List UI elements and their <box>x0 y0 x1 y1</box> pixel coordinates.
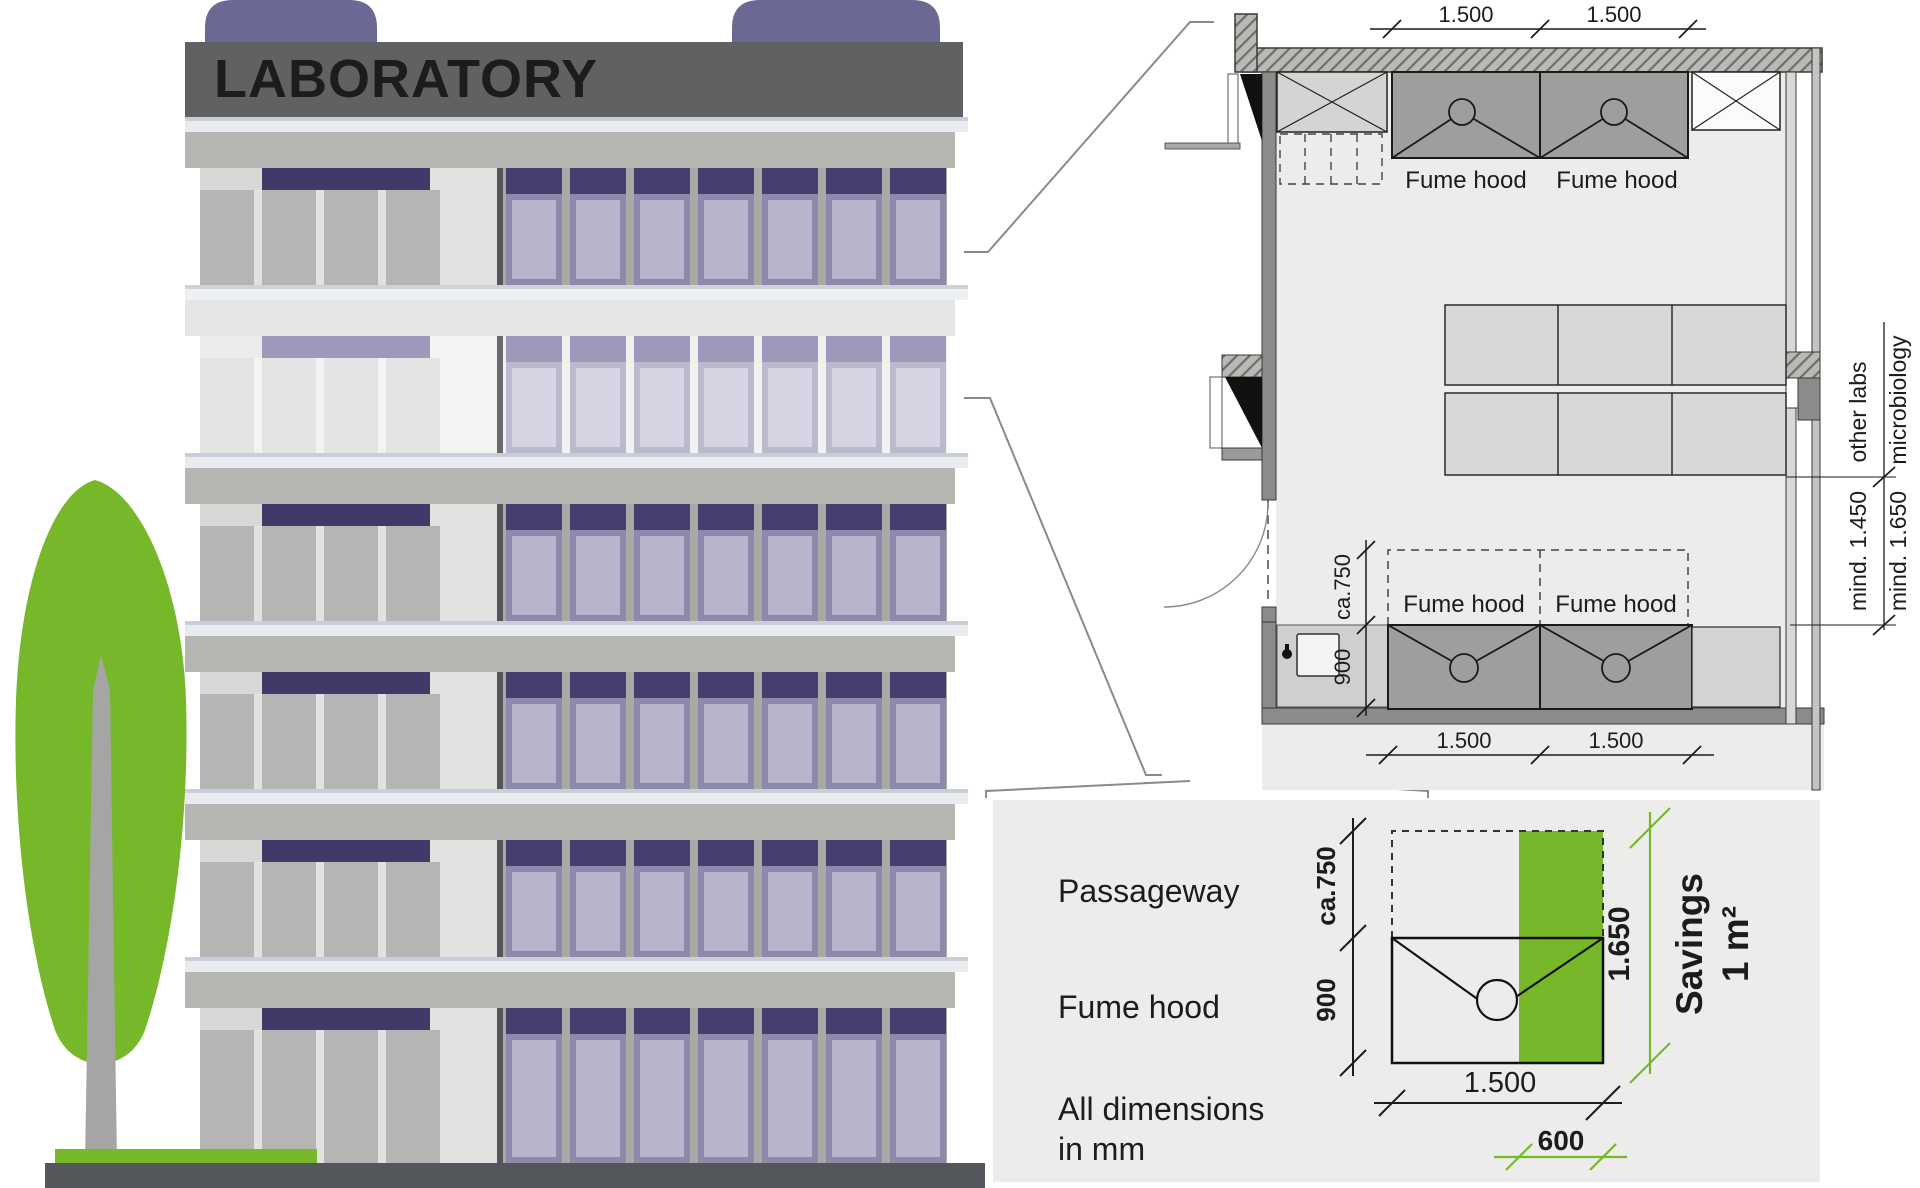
wall-right-pier <box>1798 378 1820 420</box>
window-pane <box>576 704 620 783</box>
window-header <box>570 672 626 698</box>
facade-left-window <box>262 526 316 621</box>
window-pane <box>896 872 940 951</box>
window-header <box>506 504 562 530</box>
facade-accent-band <box>262 168 430 190</box>
window-header <box>570 504 626 530</box>
roof-structure-right <box>732 0 940 44</box>
crossed-cabinet-right <box>1692 72 1780 130</box>
floor-spandrel <box>185 804 955 840</box>
facade-left-window <box>262 1030 316 1163</box>
window-pane <box>832 200 876 279</box>
facade-left-window <box>386 1030 440 1163</box>
facade-divider <box>497 1008 503 1163</box>
window-pane <box>576 872 620 951</box>
floor-slab-edge <box>185 621 968 625</box>
wall-left <box>1262 72 1276 724</box>
window-pane <box>640 704 684 783</box>
window-header <box>698 504 754 530</box>
bracket-left <box>986 781 1190 798</box>
wall-corner-stub <box>1235 14 1257 72</box>
window-header <box>634 1008 690 1034</box>
ground-strip <box>45 1163 985 1188</box>
window-pane <box>704 872 748 951</box>
facade-accent-band <box>262 840 430 862</box>
facade-left-window <box>200 190 254 285</box>
window-header <box>506 336 562 362</box>
window-pane <box>576 536 620 615</box>
hood-top-label-2: Fume hood <box>1556 167 1677 194</box>
wall-right-niche <box>1786 378 1798 408</box>
floor-spandrel <box>185 468 955 504</box>
detail-dim-width: 1.500 <box>1464 1067 1537 1099</box>
dim-top-2: 1.500 <box>1586 2 1641 27</box>
window-pane <box>576 200 620 279</box>
facade-left-window <box>262 358 316 453</box>
facade-left-window <box>386 526 440 621</box>
window-header <box>698 336 754 362</box>
label-other-labs: other labs <box>1845 361 1871 462</box>
facade-divider <box>497 672 503 789</box>
window-header <box>634 504 690 530</box>
callout-line-bottom <box>964 398 1162 775</box>
detail-dim-depth: 900 <box>1311 978 1341 1021</box>
note-in-mm: in mm <box>1058 1131 1145 1167</box>
hood-bottom-label-2: Fume hood <box>1555 591 1676 618</box>
window-symbol-lower <box>1210 355 1262 460</box>
window-header <box>826 672 882 698</box>
facade-accent-band <box>262 672 430 694</box>
facade-left-block <box>200 840 262 862</box>
window-pane <box>576 1040 620 1157</box>
dim-depth-plan: 900 <box>1330 649 1355 686</box>
window-pane <box>640 1040 684 1157</box>
window-pane <box>896 1040 940 1157</box>
note-all-dimensions: All dimensions <box>1058 1091 1264 1127</box>
floor-slab <box>185 793 968 804</box>
facade-divider <box>497 336 503 453</box>
window-header <box>890 672 946 698</box>
window-pane <box>512 704 556 783</box>
window-header <box>570 168 626 194</box>
wall-top <box>1242 48 1822 72</box>
facade-left-window <box>324 190 378 285</box>
fume-hood-top-2 <box>1540 72 1688 158</box>
floor-slab <box>185 625 968 636</box>
facade-left-window <box>324 358 378 453</box>
facade-left-block <box>200 336 262 358</box>
label-mind-1450: mind. 1.450 <box>1845 491 1871 611</box>
window-header <box>698 672 754 698</box>
legend-passageway: Passageway <box>1058 873 1239 909</box>
facade-left-window <box>386 358 440 453</box>
building-illustration: LABORATORY <box>15 0 985 1188</box>
floor-slab-edge <box>185 285 968 289</box>
hood-bottom-label-1: Fume hood <box>1403 591 1524 618</box>
savings-label-line2: 1 m² <box>1715 906 1756 982</box>
facade-left-window <box>200 526 254 621</box>
window-pane <box>832 704 876 783</box>
detail-dim-saving-label: 600 <box>1538 1125 1585 1156</box>
window-header <box>826 840 882 866</box>
floor-slab <box>185 961 968 972</box>
window-header <box>890 336 946 362</box>
facade-left-window <box>200 694 254 789</box>
dim-passage-plan: ca.750 <box>1330 554 1355 620</box>
facade-left-window <box>262 694 316 789</box>
fume-hood-top-1 <box>1392 72 1540 158</box>
window-header <box>762 672 818 698</box>
window-header <box>570 1008 626 1034</box>
window-header <box>506 168 562 194</box>
window-pane <box>512 368 556 447</box>
main-canvas: LABORATORY <box>0 0 1920 1188</box>
door-symbol <box>1164 500 1268 607</box>
window-pane <box>640 872 684 951</box>
facade-left-block <box>200 168 262 190</box>
legend-fume-hood: Fume hood <box>1058 989 1220 1025</box>
window-header <box>890 168 946 194</box>
window-pane <box>640 368 684 447</box>
window-header <box>826 336 882 362</box>
window-header <box>698 840 754 866</box>
window-symbol-upper <box>1165 74 1262 149</box>
facade-left-window <box>324 1030 378 1163</box>
floor-spandrel <box>185 636 955 672</box>
facade-left-window <box>324 862 378 957</box>
window-header <box>826 1008 882 1034</box>
callout-line-top <box>964 22 1214 252</box>
facade-left-window <box>262 190 316 285</box>
facade-left-window <box>200 862 254 957</box>
laboratory-sign-label: LABORATORY <box>214 49 598 109</box>
window-header <box>506 840 562 866</box>
label-microbiology: microbiology <box>1885 335 1911 465</box>
building-floors <box>185 117 968 1163</box>
floor-plan: Fume hood Fume hood Fume hood Fume hood <box>1164 2 1911 790</box>
facade-left-window <box>386 694 440 789</box>
window-pane <box>512 1040 556 1157</box>
facade-left-window <box>386 862 440 957</box>
window-header <box>570 336 626 362</box>
window-pane <box>512 536 556 615</box>
dim-top-1: 1.500 <box>1438 2 1493 27</box>
window-pane <box>832 872 876 951</box>
facade-left-block <box>200 1008 262 1030</box>
window-pane <box>896 200 940 279</box>
counter-bottom-right <box>1692 627 1780 707</box>
window-header <box>698 1008 754 1034</box>
window-pane <box>704 368 748 447</box>
label-mind-1650: mind. 1.650 <box>1885 491 1911 611</box>
facade-accent-band <box>262 336 430 358</box>
window-header <box>762 504 818 530</box>
floor-slab <box>185 457 968 468</box>
facade-left-window <box>200 358 254 453</box>
window-pane <box>832 368 876 447</box>
floor-slab <box>185 121 968 132</box>
window-header <box>506 1008 562 1034</box>
window-pane <box>896 368 940 447</box>
window-header <box>762 1008 818 1034</box>
window-pane <box>768 536 812 615</box>
detail-dim-passage: ca.750 <box>1311 846 1341 926</box>
facade-accent-band <box>262 504 430 526</box>
fume-hood-bottom-1 <box>1388 625 1540 709</box>
window-pane <box>704 704 748 783</box>
floor-spandrel <box>185 972 955 1008</box>
window-pane <box>896 704 940 783</box>
facade-left-window <box>262 862 316 957</box>
window-header <box>762 168 818 194</box>
window-pane <box>704 200 748 279</box>
window-header <box>634 840 690 866</box>
floor-slab-edge <box>185 117 968 121</box>
window-pane <box>768 704 812 783</box>
grass-strip <box>55 1149 317 1163</box>
window-header <box>762 336 818 362</box>
facade-left-window <box>200 1030 254 1163</box>
window-pane <box>640 200 684 279</box>
facade-divider <box>497 840 503 957</box>
facade-left-window <box>324 526 378 621</box>
window-pane <box>640 536 684 615</box>
window-header <box>634 168 690 194</box>
window-header <box>698 168 754 194</box>
window-pane <box>832 1040 876 1157</box>
facade-left-block <box>200 672 262 694</box>
detail-panel: Passageway Fume hood All dimensions in m… <box>993 800 1820 1182</box>
wall-right-hatch-detail <box>1786 352 1820 378</box>
window-header <box>890 504 946 530</box>
floor-spandrel <box>185 300 955 336</box>
window-header <box>570 840 626 866</box>
floor-slab-edge <box>185 789 968 793</box>
plan-exterior-strip <box>1262 724 1824 790</box>
window-header <box>634 336 690 362</box>
window-header <box>634 672 690 698</box>
savings-label-line1: Savings <box>1669 873 1710 1015</box>
infographic-lab-fume-hood-layout: LABORATORY <box>0 0 1920 1188</box>
facade-divider <box>497 504 503 621</box>
window-header <box>506 672 562 698</box>
window-header <box>762 840 818 866</box>
hood-top-label-1: Fume hood <box>1405 167 1526 194</box>
window-pane <box>768 368 812 447</box>
floor-spandrel <box>185 132 955 168</box>
wall-bottom <box>1262 708 1824 724</box>
window-pane <box>768 872 812 951</box>
dim-bottom-1: 1.500 <box>1436 728 1491 753</box>
window-header <box>826 168 882 194</box>
detail-dim-total-label: 1.650 <box>1603 906 1636 981</box>
window-pane <box>896 536 940 615</box>
window-header <box>890 1008 946 1034</box>
window-pane <box>512 872 556 951</box>
window-pane <box>704 1040 748 1157</box>
facade-left-window <box>386 190 440 285</box>
window-pane <box>832 536 876 615</box>
floor-slab-edge <box>185 957 968 961</box>
window-header <box>890 840 946 866</box>
facade-left-block <box>200 504 262 526</box>
window-header <box>826 504 882 530</box>
window-pane <box>576 368 620 447</box>
wall-right <box>1786 48 1820 790</box>
fume-hood-bottom-2 <box>1540 625 1692 709</box>
facade-left-window <box>324 694 378 789</box>
dimension-top <box>1370 20 1706 38</box>
window-pane <box>768 1040 812 1157</box>
crossed-cabinet-left <box>1277 72 1387 132</box>
window-pane <box>704 536 748 615</box>
facade-accent-band <box>262 1008 430 1030</box>
roof-structure-left <box>205 0 377 44</box>
floor-slab <box>185 289 968 300</box>
window-pane <box>512 200 556 279</box>
dim-bottom-2: 1.500 <box>1588 728 1643 753</box>
window-pane <box>768 200 812 279</box>
facade-divider <box>497 168 503 285</box>
floor-slab-edge <box>185 453 968 457</box>
